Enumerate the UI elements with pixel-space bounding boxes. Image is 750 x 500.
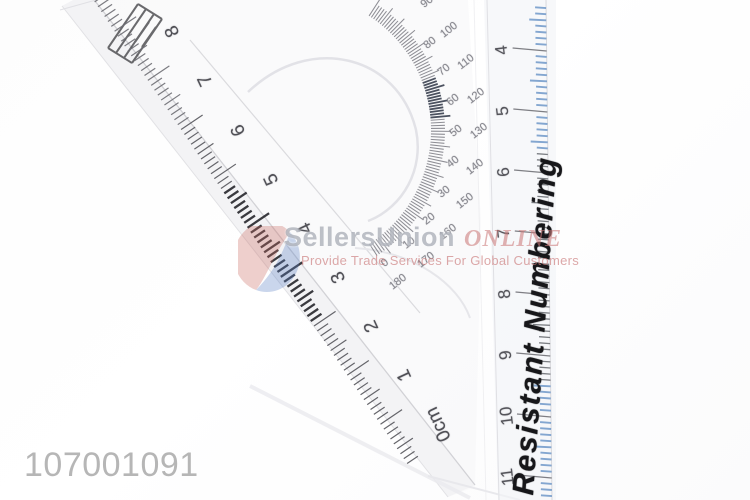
tick-mark xyxy=(407,456,418,463)
tick-mark xyxy=(536,105,547,106)
tick-mark xyxy=(535,38,546,39)
tick-mark xyxy=(400,446,411,453)
tick-mark xyxy=(536,68,547,69)
tick-mark xyxy=(536,44,547,45)
tick-mark xyxy=(536,123,547,124)
tick-mark xyxy=(431,122,445,123)
tick-mark xyxy=(536,117,547,118)
tick-mark xyxy=(537,135,548,136)
tick-mark xyxy=(535,13,546,14)
tick-mark xyxy=(536,74,547,75)
catalog-number: 107001091 xyxy=(24,446,199,485)
tick-mark xyxy=(537,148,548,149)
tick-mark xyxy=(536,62,547,63)
rulers-scene xyxy=(0,0,750,500)
tick-mark xyxy=(431,137,445,138)
product-photo: 876543210cm90100801107012060130501404015… xyxy=(0,0,750,500)
tick-mark xyxy=(529,20,546,21)
tick-mark xyxy=(541,489,552,490)
tick-mark xyxy=(537,129,548,130)
tick-mark xyxy=(535,7,546,8)
tick-mark xyxy=(536,99,547,100)
tick-mark xyxy=(535,32,546,33)
tick-mark xyxy=(530,81,547,82)
tick-mark xyxy=(536,93,547,94)
tick-mark xyxy=(404,451,415,458)
tick-mark xyxy=(536,56,547,57)
tick-mark xyxy=(536,87,547,88)
tick-mark xyxy=(541,495,552,496)
tick-mark xyxy=(531,142,548,143)
tick-mark xyxy=(541,483,552,484)
triangle-ruler-body xyxy=(60,0,520,500)
tick-mark xyxy=(535,26,546,27)
